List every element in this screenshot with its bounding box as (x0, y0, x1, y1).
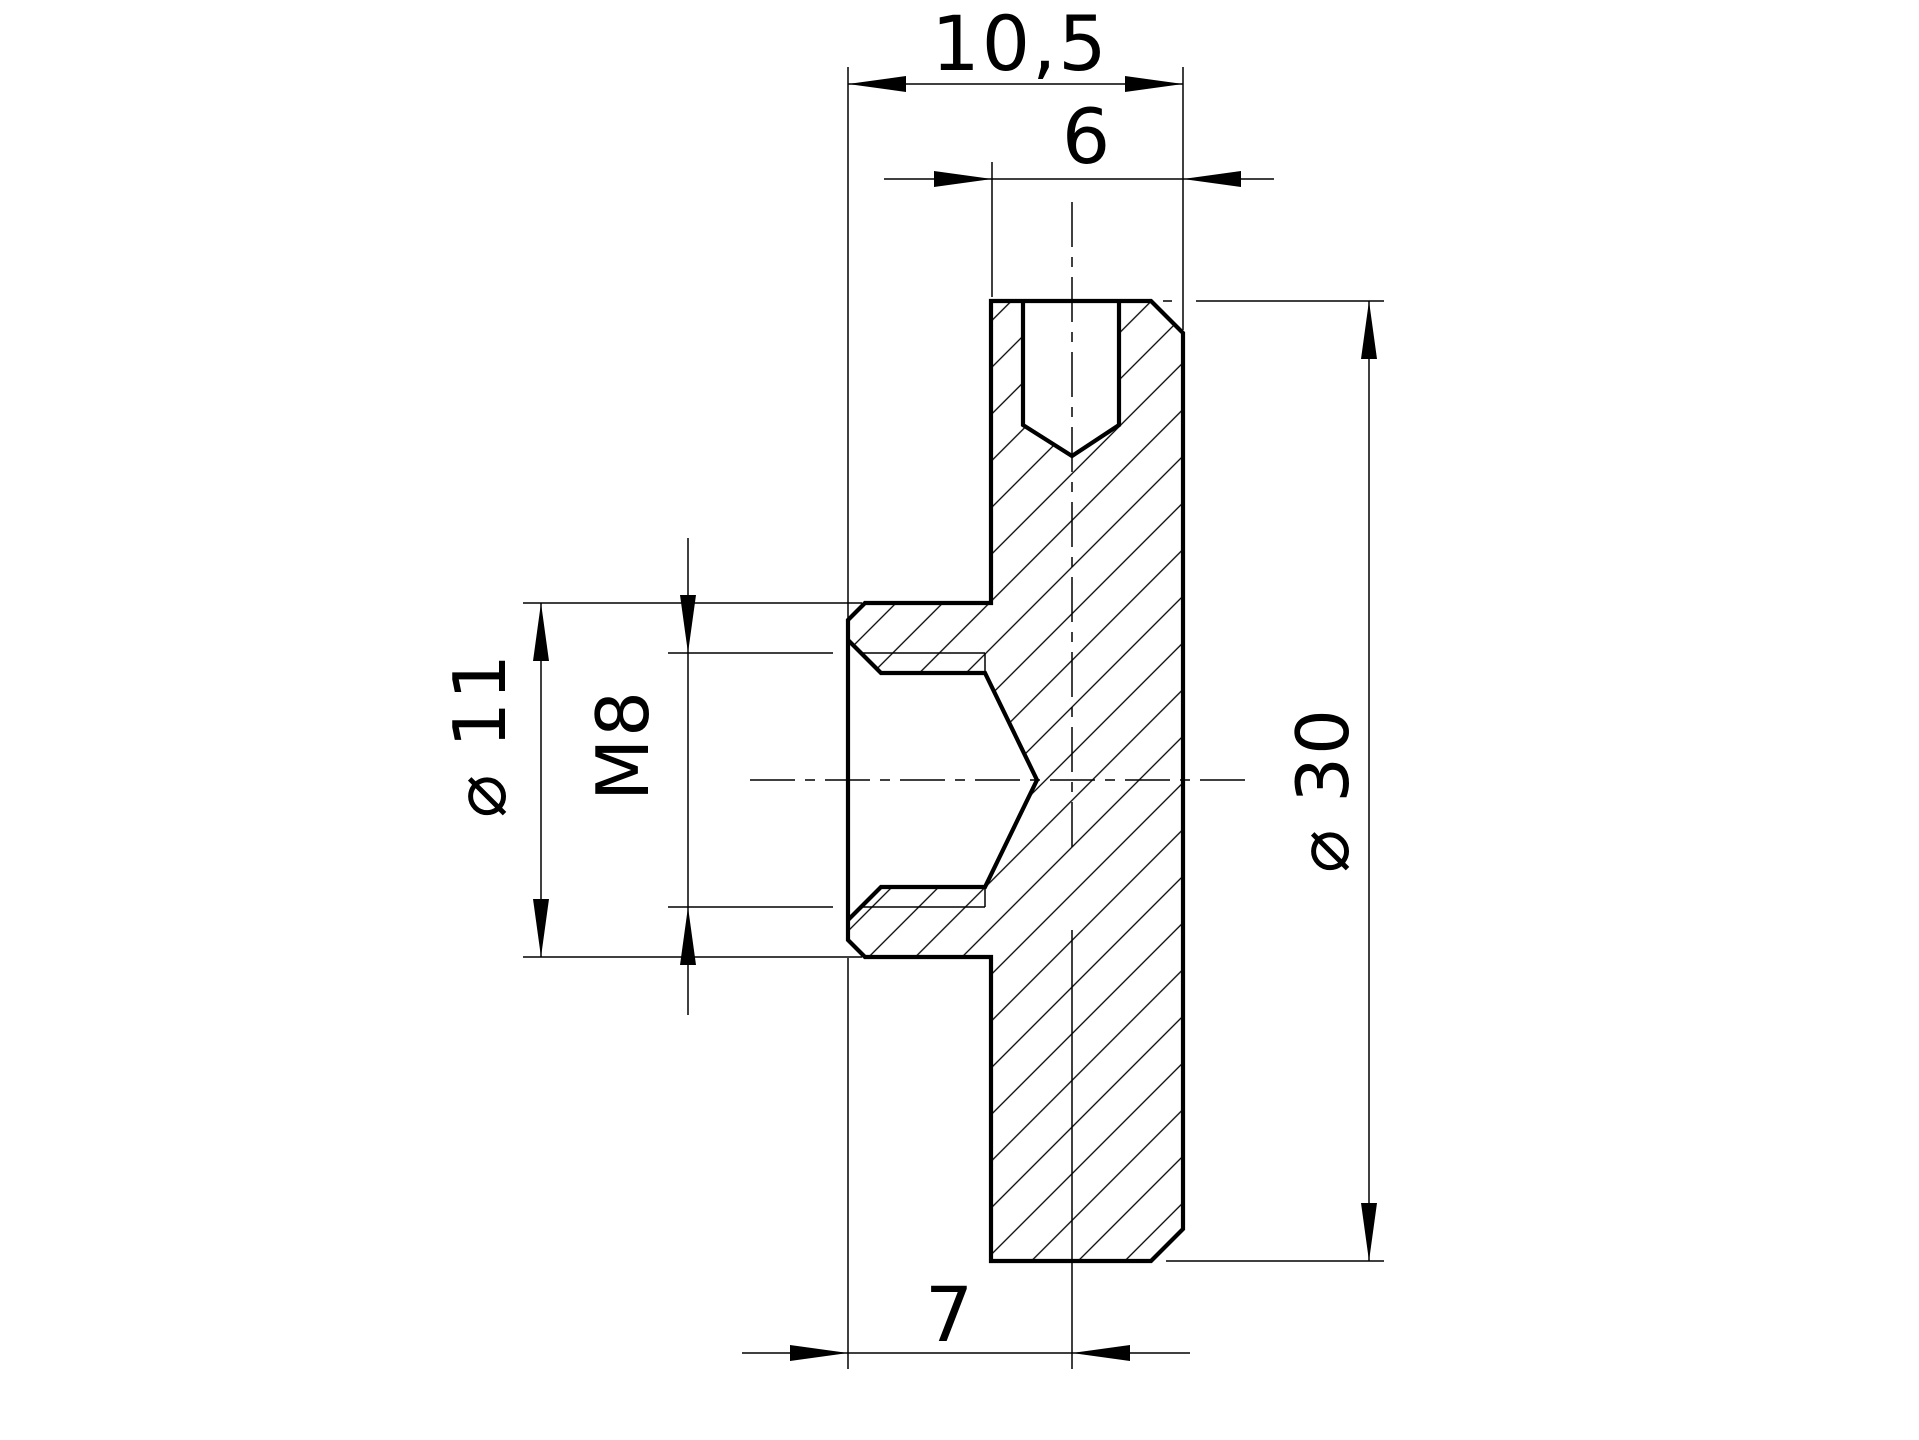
dimension-label-upper-step: 6 (1062, 92, 1112, 181)
dimension-label-boss-diameter: ⌀ 11 (438, 652, 522, 818)
dimension-label-thread: M8 (581, 689, 665, 801)
dimension-label-outer-diameter: ⌀ 30 (1281, 707, 1365, 873)
technical-drawing-canvas: 10,5 6 ⌀ 11 M8 ⌀ 30 (0, 0, 1919, 1440)
dimension-label-total-width: 10,5 (931, 0, 1108, 88)
engineering-drawing-page: 10,5 6 ⌀ 11 M8 ⌀ 30 (0, 0, 1919, 1440)
drawing-background (0, 0, 1919, 1440)
dimension-label-hole-offset: 7 (925, 1270, 975, 1359)
